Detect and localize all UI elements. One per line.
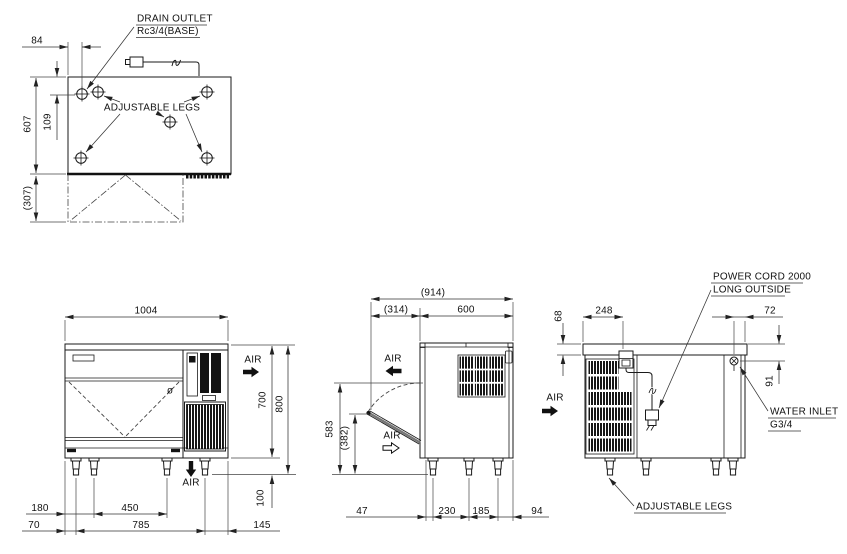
air-flow-left-icon xyxy=(386,366,402,376)
louver-slot xyxy=(211,353,221,393)
adjustable-leg-symbol xyxy=(200,151,215,166)
condenser-grille-front xyxy=(185,402,226,451)
adjustable-leg xyxy=(728,458,738,475)
adjustable-leg-symbol xyxy=(91,85,106,100)
air-label-side-top: AIR xyxy=(384,354,401,365)
dim-drain-offset-y: 109 xyxy=(43,113,54,131)
water-inlet-label-line1: WATER INLET xyxy=(770,407,838,418)
dim-leg-spacing-front: 230 xyxy=(438,506,456,517)
condenser-grille-side xyxy=(458,355,505,397)
adjustable-leg xyxy=(605,458,615,475)
drain-outlet-label-line2: Rc3/4(BASE) xyxy=(137,26,199,37)
rear-view: 68 248 72 91 POWER CORD 2000 LONG OUTSID… xyxy=(554,272,839,514)
dim-leg-rear-offset: 94 xyxy=(531,506,543,517)
air-flow-right-icon xyxy=(542,406,558,416)
adjustable-leg xyxy=(200,458,210,475)
dim-door-swing: (314) xyxy=(384,305,408,316)
dim-leg1-offset: 70 xyxy=(28,520,40,531)
side-view: AIR AIR AIR (914) (314) 600 583 (382) 47… xyxy=(325,288,564,522)
dim-opening-height: 583 xyxy=(325,420,336,438)
adjustable-leg xyxy=(71,458,81,475)
louver-slot xyxy=(200,353,209,393)
condenser-grille-rear xyxy=(586,359,634,454)
dim-total-depth: (914) xyxy=(421,288,445,299)
adjustable-leg xyxy=(711,458,721,475)
door-handle xyxy=(73,355,94,361)
front-view: ø AIR AIR 1004 700 800 100 180 450 70 78… xyxy=(22,306,296,536)
power-plug xyxy=(646,410,659,420)
dim-inlet-depth: 91 xyxy=(765,375,776,387)
power-cord-label-line1: POWER CORD 2000 xyxy=(713,272,811,283)
adjustable-leg xyxy=(641,458,651,475)
dim-right-margin: 145 xyxy=(253,520,271,531)
dim-inlet-offset: 72 xyxy=(764,306,776,317)
adjustable-legs-label-rear: ADJUSTABLE LEGS xyxy=(636,502,732,513)
dim-leg-front-offset: 47 xyxy=(356,506,368,517)
dim-body-height: 700 xyxy=(258,391,269,409)
dim-leg-spacing-rear: 185 xyxy=(472,506,490,517)
diameter-mark: ø xyxy=(167,386,173,397)
adjustable-leg xyxy=(89,458,99,475)
adjustable-leg-symbol xyxy=(74,151,89,166)
dim-depth: 600 xyxy=(457,305,475,316)
air-flow-down-icon xyxy=(186,461,196,477)
door-projection-outline xyxy=(68,174,183,222)
dim-grille-width: 248 xyxy=(595,306,613,317)
adjustable-leg xyxy=(493,458,503,475)
air-flow-right-icon xyxy=(243,367,259,377)
top-view: DRAIN OUTLET Rc3/4(BASE) ADJUSTABLE LEGS… xyxy=(22,14,231,223)
water-inlet-symbol xyxy=(730,357,738,371)
air-label-side-rear: AIR xyxy=(546,393,563,404)
adjustable-leg xyxy=(162,458,172,475)
power-cord-top-view xyxy=(126,57,200,76)
adjustable-legs-label-top: ADJUSTABLE LEGS xyxy=(104,103,200,114)
dim-total-height: 800 xyxy=(275,395,286,413)
dim-top-depth: 607 xyxy=(23,115,34,133)
dim-width: 1004 xyxy=(134,306,157,317)
drawing-svg: DRAIN OUTLET Rc3/4(BASE) ADJUSTABLE LEGS… xyxy=(0,0,847,554)
technical-drawing-canvas: DRAIN OUTLET Rc3/4(BASE) ADJUSTABLE LEGS… xyxy=(0,0,847,554)
dim-drain-offset-x: 84 xyxy=(31,36,43,47)
dim-leg-height: 100 xyxy=(256,489,267,507)
power-cord-label-line2: LONG OUTSIDE xyxy=(713,285,791,296)
air-label-front-side: AIR xyxy=(244,355,261,366)
dim-leg-span: 785 xyxy=(132,520,150,531)
dim-leg-spacing-mid: 450 xyxy=(121,503,139,514)
dim-door-open-height: (382) xyxy=(340,426,351,450)
adjustable-leg-symbol xyxy=(163,115,178,130)
air-flow-hollow-right-icon xyxy=(383,443,399,453)
dim-top-band-height: 68 xyxy=(554,310,565,322)
air-label-front-bottom: AIR xyxy=(182,478,199,489)
dim-leg2-offset: 180 xyxy=(31,503,49,514)
dim-door-projection: (307) xyxy=(23,186,34,210)
adjustable-leg-symbol xyxy=(200,85,215,100)
adjustable-leg xyxy=(428,458,438,475)
water-inlet-label-line2: G3/4 xyxy=(770,420,793,431)
air-label-side-door: AIR xyxy=(383,431,400,442)
adjustable-leg xyxy=(464,458,474,475)
drain-outlet-label-line1: DRAIN OUTLET xyxy=(137,14,213,25)
